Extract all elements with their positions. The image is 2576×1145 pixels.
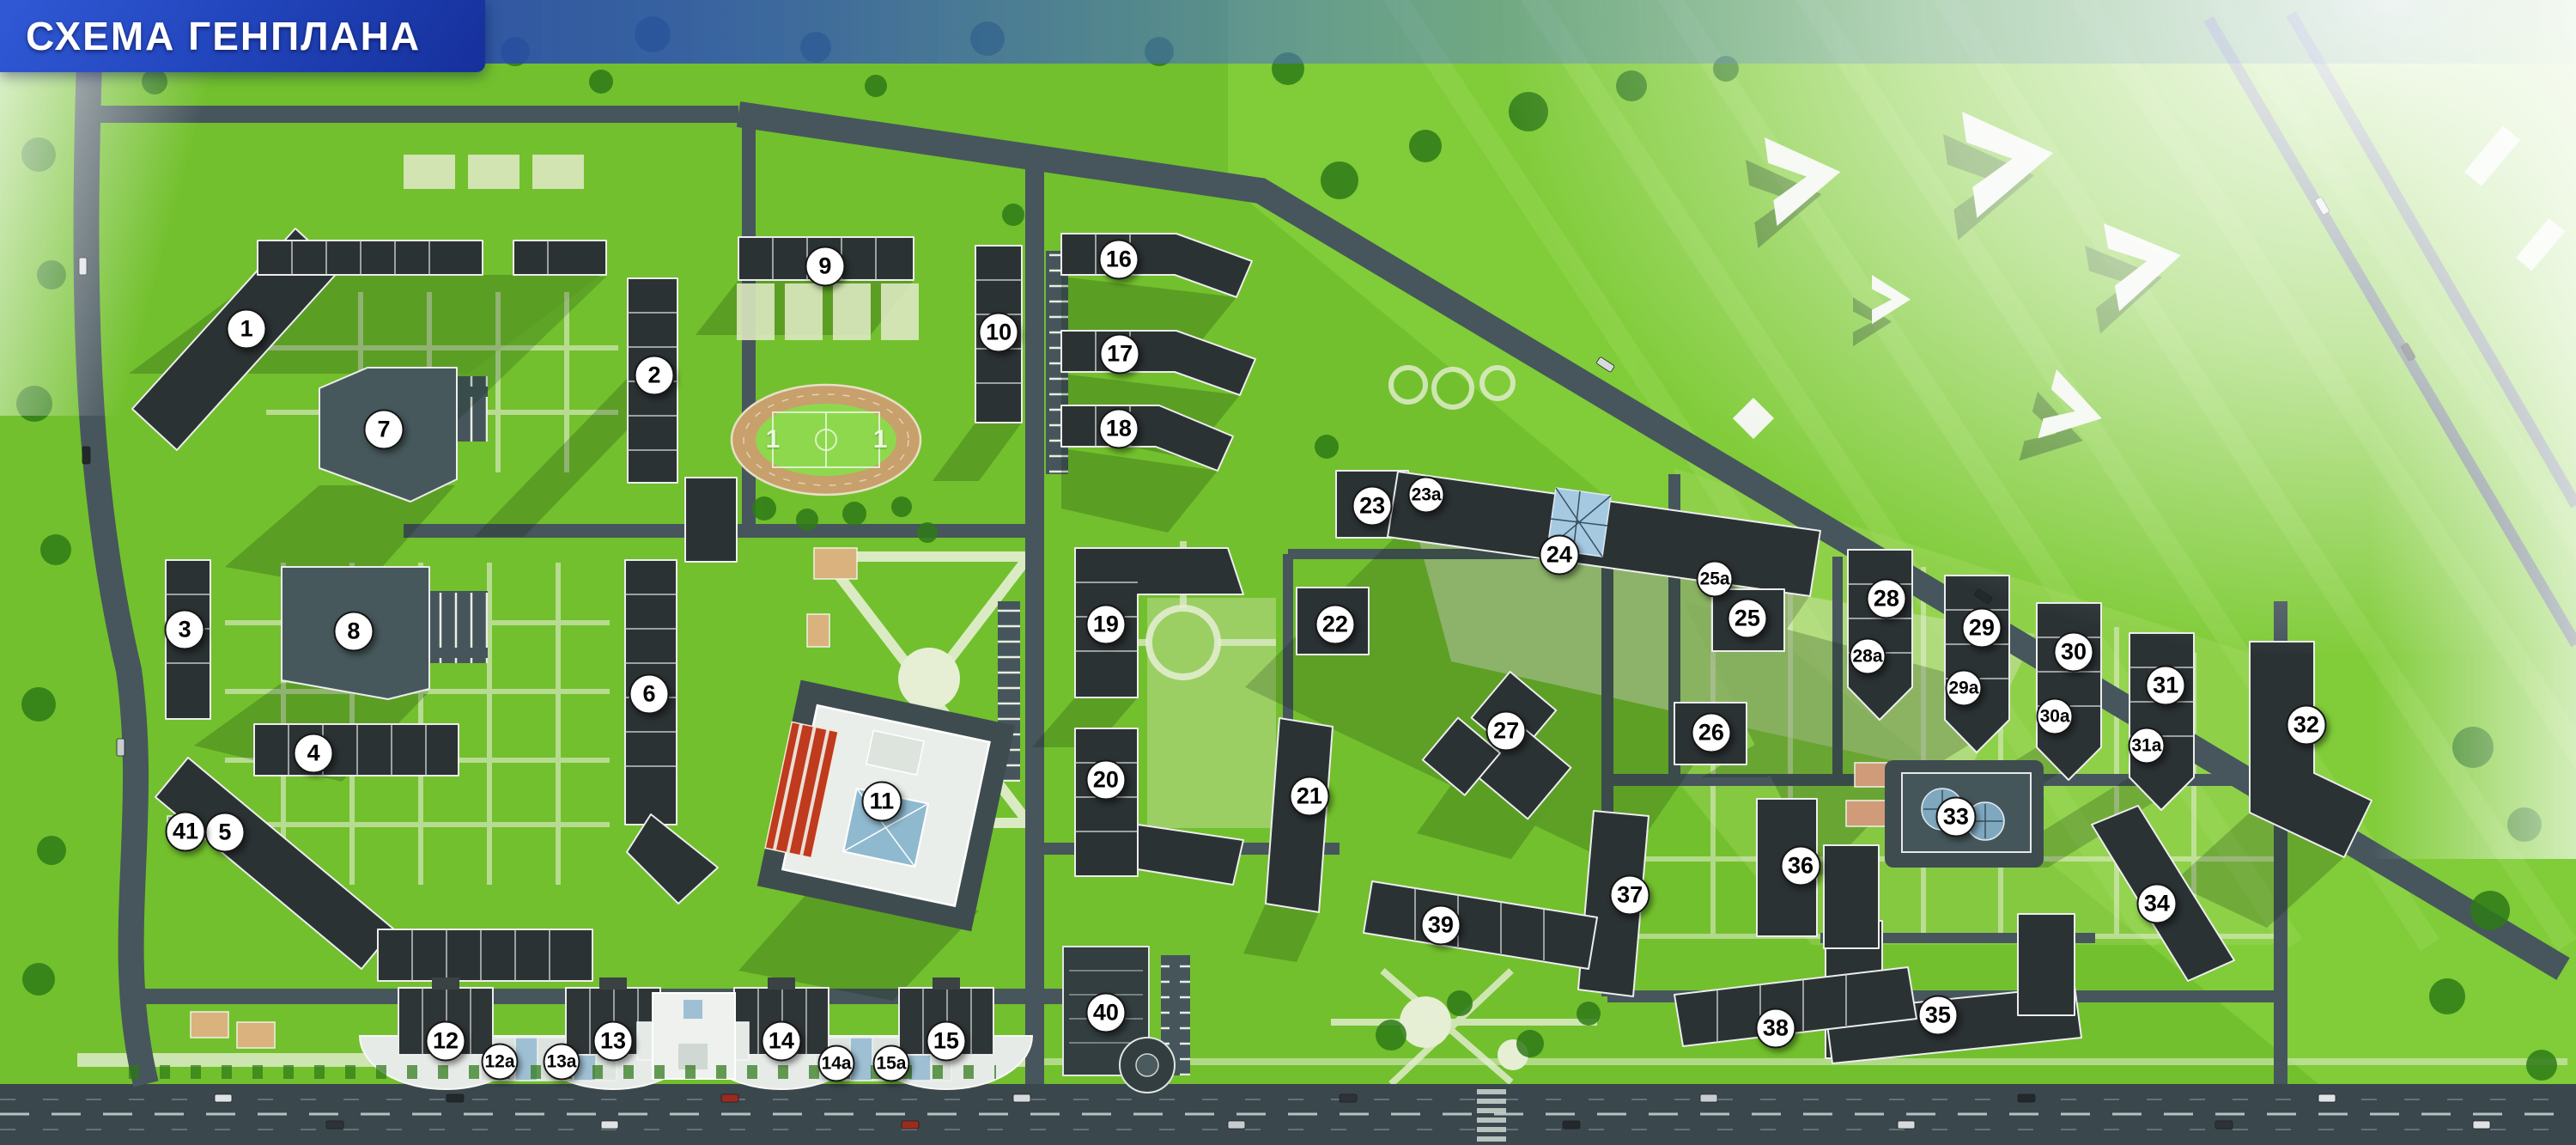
building-marker-28a[interactable]: 28а [1850,637,1886,674]
building-marker-7[interactable]: 7 [364,410,404,450]
building-marker-21[interactable]: 21 [1289,776,1329,816]
stadium-field-mark: 1 [873,425,888,454]
building-marker-15[interactable]: 15 [926,1020,966,1061]
building-marker-37[interactable]: 37 [1610,875,1650,916]
building-marker-16[interactable]: 16 [1098,240,1139,280]
building-marker-13[interactable]: 13 [593,1020,634,1061]
building-marker-41[interactable]: 41 [166,812,206,852]
building-marker-25[interactable]: 25 [1727,598,1767,638]
building-marker-31[interactable]: 31 [2146,665,2186,705]
building-marker-1[interactable]: 1 [227,308,267,349]
building-marker-27[interactable]: 27 [1486,710,1527,751]
building-marker-2[interactable]: 2 [635,355,675,395]
building-marker-36[interactable]: 36 [1781,846,1821,886]
building-marker-32[interactable]: 32 [2286,705,2326,746]
building-marker-23[interactable]: 23 [1352,486,1393,527]
building-marker-8[interactable]: 8 [333,612,374,652]
building-marker-28[interactable]: 28 [1866,579,1906,619]
building-marker-9[interactable]: 9 [805,247,845,287]
building-marker-40[interactable]: 40 [1085,993,1126,1033]
building-marker-3[interactable]: 3 [165,610,205,650]
building-marker-30[interactable]: 30 [2054,632,2094,673]
building-marker-24[interactable]: 24 [1539,534,1579,575]
building-marker-4[interactable]: 4 [294,733,334,773]
building-marker-22[interactable]: 22 [1315,605,1355,645]
building-marker-34[interactable]: 34 [2136,884,2177,924]
building-marker-13a[interactable]: 13а [543,1043,580,1080]
building-marker-10[interactable]: 10 [979,312,1019,352]
building-marker-15a[interactable]: 15а [872,1045,909,1081]
building-marker-14a[interactable]: 14а [818,1045,855,1081]
building-marker-20[interactable]: 20 [1085,760,1126,801]
building-marker-26[interactable]: 26 [1691,712,1731,752]
building-marker-18[interactable]: 18 [1098,408,1139,448]
building-marker-31a[interactable]: 31а [2128,728,2165,764]
building-markers-layer: 12345678910111212а13а131414а15а151617181… [0,0,2576,1145]
building-marker-38[interactable]: 38 [1755,1008,1795,1049]
building-marker-35[interactable]: 35 [1917,995,1958,1035]
building-marker-30a[interactable]: 30а [2037,698,2074,735]
stadium-field-mark: 1 [766,425,781,454]
building-marker-12[interactable]: 12 [425,1020,465,1061]
building-marker-19[interactable]: 19 [1085,605,1126,645]
building-marker-25a[interactable]: 25а [1697,560,1734,597]
building-marker-17[interactable]: 17 [1100,334,1140,375]
building-marker-5[interactable]: 5 [204,812,245,852]
building-marker-12a[interactable]: 12а [482,1043,519,1080]
building-marker-6[interactable]: 6 [629,674,670,715]
building-marker-33[interactable]: 33 [1935,796,1976,837]
building-marker-14[interactable]: 14 [761,1020,801,1061]
building-marker-29[interactable]: 29 [1961,608,2002,649]
building-marker-11[interactable]: 11 [861,781,902,821]
building-marker-39[interactable]: 39 [1420,905,1461,946]
building-marker-29a[interactable]: 29а [1945,669,1982,706]
genplan-scheme: СХЕМА ГЕНПЛАНА 12345678910111212а13а1314… [0,0,2576,1145]
building-marker-23a[interactable]: 23а [1408,476,1445,513]
